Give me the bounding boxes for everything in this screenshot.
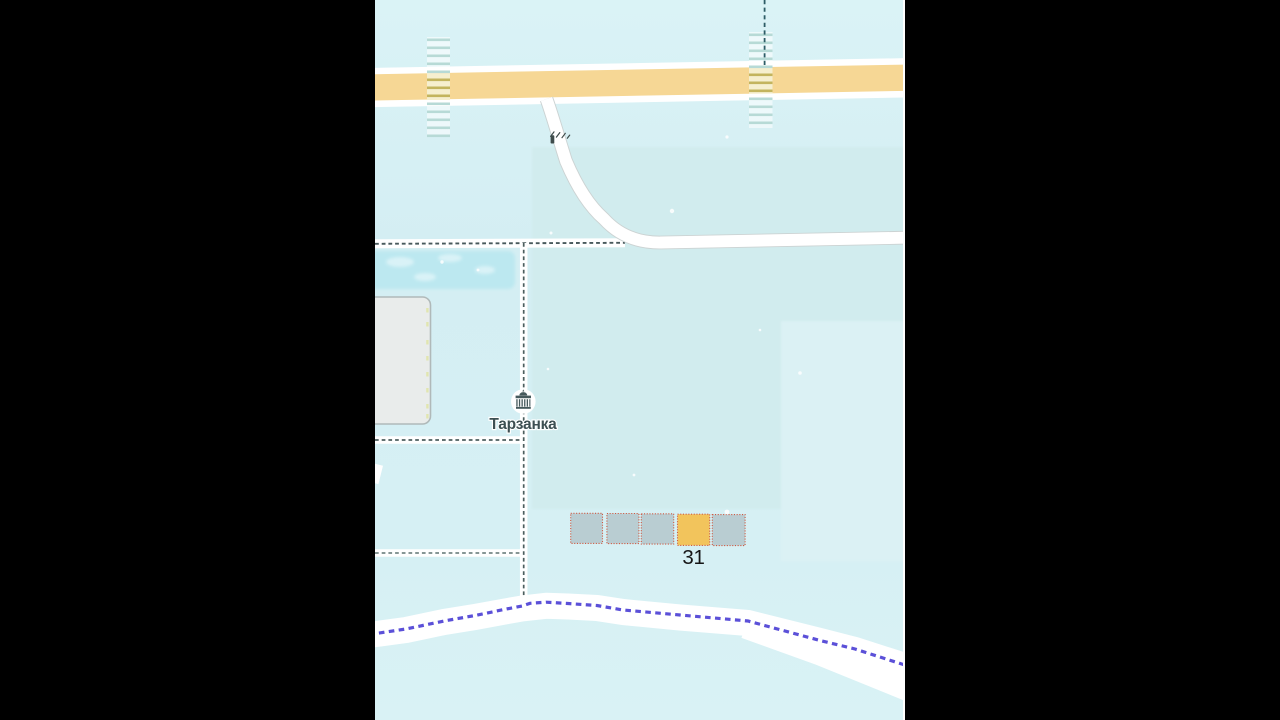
svg-text:Тарзанка: Тарзанка (489, 416, 557, 433)
svg-text:31: 31 (682, 546, 704, 569)
